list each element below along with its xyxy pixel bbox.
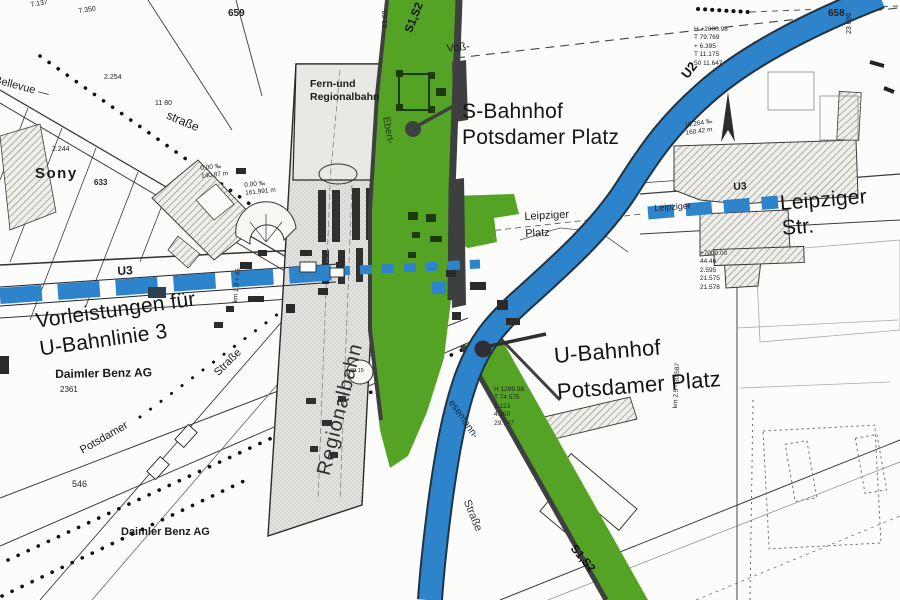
parcel-number: 659 xyxy=(228,8,245,20)
u-bahnhof-dot xyxy=(475,341,492,358)
survey-number: 11 80 xyxy=(155,100,172,108)
label-u3-right: U3 xyxy=(733,180,747,193)
label-leipziger-platz: Leipziger Platz xyxy=(524,207,570,243)
survey-number: 23 000 xyxy=(846,13,854,34)
survey-block: H +2000.98 T 79.769 + 6.395 T 11.175 50 … xyxy=(694,26,728,68)
survey-block: 0.00 ‰ 140.87 m xyxy=(200,162,229,182)
s-bahnhof-dot xyxy=(405,121,421,137)
survey-number: 2.244 xyxy=(52,146,70,154)
parcel-number: 2361 xyxy=(60,385,78,395)
survey-number: 2.254 xyxy=(104,74,122,82)
label-voss: Voß- xyxy=(446,41,470,57)
north-arrow-icon xyxy=(721,92,735,142)
parcel-number: 546 xyxy=(72,479,87,490)
survey-number: 23 60 xyxy=(382,10,390,28)
parcel-number: 658 xyxy=(828,8,845,20)
label-u3-left: U3 xyxy=(117,263,133,278)
parcel-number: 633 xyxy=(94,178,107,188)
potsdamer-platz-plan-map: S-Bahnhof Potsdamer Platz U-Bahnhof Pots… xyxy=(0,0,900,600)
label-daimler-benz-1: Daimler Benz AG xyxy=(55,365,152,381)
survey-block: 0.00 ‰ 161.991 m xyxy=(244,179,276,199)
label-s-bahnhof: S-Bahnhof Potsdamer Platz xyxy=(462,99,619,152)
label-leipziger-str: Leipziger Str. xyxy=(779,182,900,242)
survey-number: 30.15 xyxy=(350,368,364,375)
label-fern-und-regionalbahn: Fern-und Regionalbahn xyxy=(310,78,379,103)
survey-block: +7000.00 44.46 2.595 21.575 21.578 xyxy=(700,250,727,292)
label-sony: Sony xyxy=(35,165,78,183)
survey-block: H 1299.98 T 74.575 1.123 4.250 29.747 xyxy=(494,386,524,428)
label-daimler-benz-2: Daimler Benz AG xyxy=(121,526,210,539)
